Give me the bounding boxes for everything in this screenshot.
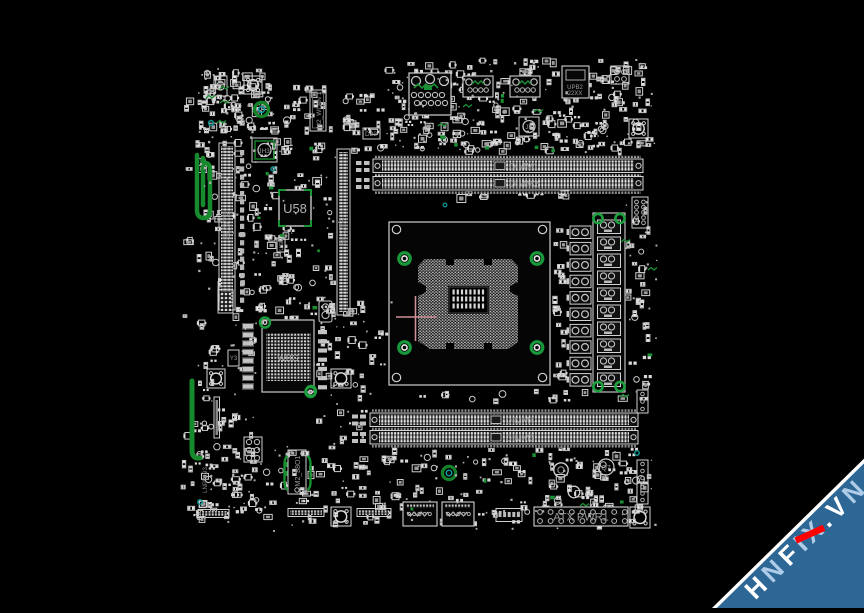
svg-text:Y3: Y3	[230, 356, 238, 362]
svg-text:M2_WLAN 1: M2_WLAN 1	[316, 91, 323, 128]
svg-text:Q7: Q7	[601, 465, 610, 472]
svg-text:WBG: WBG	[277, 353, 299, 363]
svg-text:LNPW 93: LNPW 93	[203, 467, 209, 493]
svg-text:DIMM2: DIMM2	[509, 179, 538, 189]
svg-text:JH: JH	[525, 125, 532, 131]
svg-text:ATX PWR1: ATX PWR1	[553, 512, 608, 524]
svg-text:M2_88O1: M2_88O1	[295, 456, 302, 487]
svg-text:22XX: 22XX	[568, 91, 583, 97]
svg-text:JH3: JH3	[258, 148, 270, 155]
svg-text:SLOT2: SLOT2	[222, 212, 232, 241]
svg-text:DIMM3: DIMM3	[505, 433, 534, 443]
svg-text:USB: USB	[279, 239, 285, 251]
svg-text:DIMM4: DIMM4	[505, 415, 534, 425]
svg-text:DIMM1: DIMM1	[509, 161, 538, 171]
